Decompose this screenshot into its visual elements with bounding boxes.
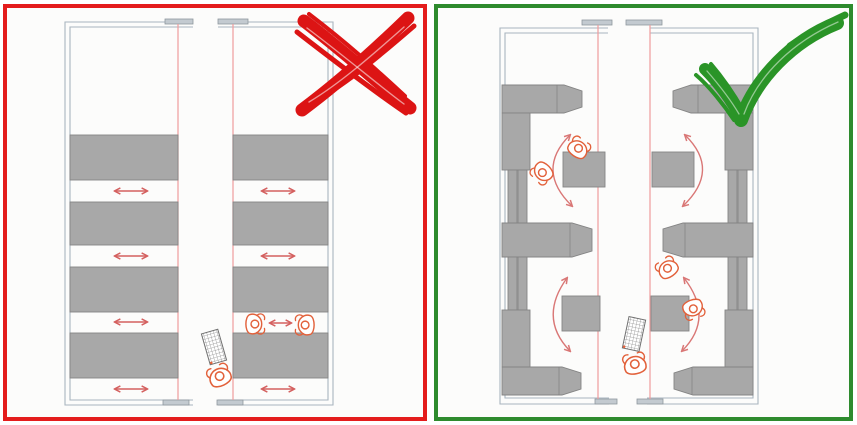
shelf-stack [518, 170, 527, 223]
pointed-shelf [663, 223, 753, 257]
pointed-shelf [502, 85, 582, 113]
person-icon [205, 362, 234, 390]
pointed-shelf [674, 367, 753, 395]
person-icon [246, 314, 265, 334]
shelf-stack [508, 170, 517, 223]
shelf-stack [70, 333, 178, 378]
x-mark-icon [297, 14, 414, 113]
door-bar [218, 19, 248, 24]
shelf-stack [233, 202, 328, 245]
book-trolley-icon [622, 317, 645, 352]
person-icon [528, 159, 555, 186]
shelf-stack [502, 310, 530, 367]
shelf-stack [508, 257, 517, 310]
door-bar [595, 399, 617, 404]
shelf-stack [738, 257, 747, 310]
island-shelf [651, 296, 689, 331]
figure [0, 0, 857, 425]
shelf-stack [70, 267, 178, 312]
shelf-stack [70, 202, 178, 245]
door-bar [637, 399, 663, 404]
door-bar [626, 20, 662, 25]
room-left [500, 20, 617, 404]
shelf-stack [233, 333, 328, 378]
book-trolley-icon [201, 329, 226, 364]
room-right [217, 19, 333, 405]
panel-correct [434, 4, 853, 421]
shelf-stack [518, 257, 527, 310]
shelf-stack [725, 310, 753, 367]
person-icon [295, 315, 314, 335]
door-bar [163, 400, 189, 405]
room-left [65, 19, 193, 405]
floor-plan-correct [438, 8, 849, 417]
shelf-stack [70, 135, 178, 180]
person-icon [622, 351, 648, 376]
floor-plan-incorrect [7, 8, 423, 417]
door-bar [165, 19, 193, 24]
corridor [201, 329, 233, 389]
corridor [622, 317, 648, 376]
shelf-stack [233, 267, 328, 312]
door-bar [217, 400, 243, 405]
shelf-stack [502, 113, 530, 170]
panel-incorrect [3, 4, 427, 421]
island-shelf [562, 296, 600, 331]
door-bar [582, 20, 612, 25]
shelf-stack [233, 135, 328, 180]
room-right [626, 20, 758, 404]
shelf-stack [728, 257, 737, 310]
pointed-shelf [502, 223, 592, 257]
person-icon [654, 255, 681, 282]
shelf-stack [738, 170, 747, 223]
island-shelf [652, 152, 694, 187]
pointed-shelf [502, 367, 581, 395]
shelf-stack [728, 170, 737, 223]
